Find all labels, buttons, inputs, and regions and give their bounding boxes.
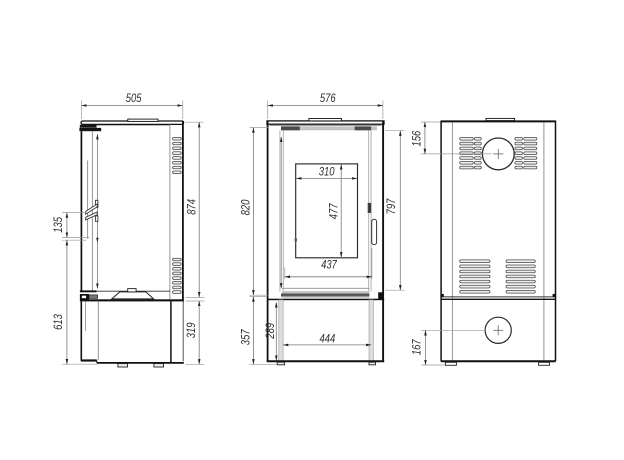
svg-text:156: 156 [411,130,424,146]
svg-text:874: 874 [186,199,199,215]
svg-text:820: 820 [240,199,253,215]
svg-text:357: 357 [240,329,253,345]
svg-text:310: 310 [319,166,335,179]
svg-text:444: 444 [320,332,336,345]
svg-text:576: 576 [320,92,336,105]
svg-text:135: 135 [52,217,65,233]
svg-text:437: 437 [321,259,337,272]
svg-text:797: 797 [385,198,398,214]
svg-text:613: 613 [52,314,65,330]
svg-text:505: 505 [126,92,142,105]
svg-text:477: 477 [328,203,341,219]
svg-text:319: 319 [185,322,198,338]
svg-text:289: 289 [264,322,277,339]
svg-text:167: 167 [410,339,423,355]
